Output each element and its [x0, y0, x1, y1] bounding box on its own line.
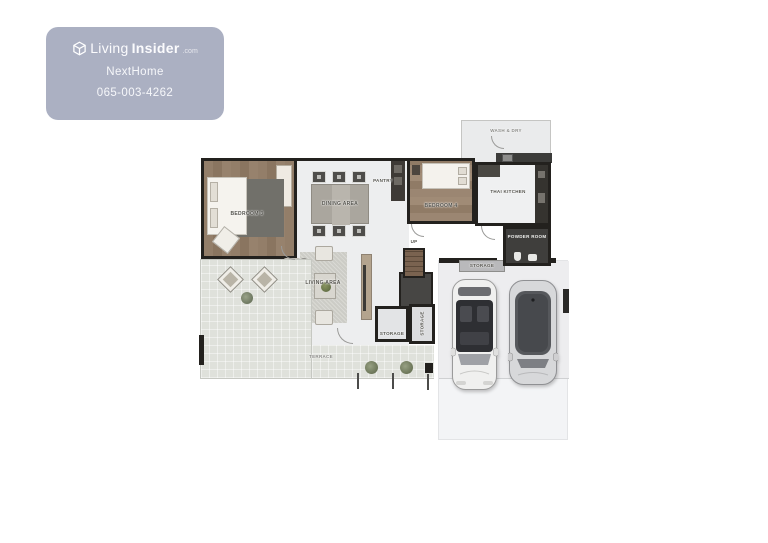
powder-room: POWDER ROOM [503, 226, 551, 266]
watermark-badge: LivingInsider.com NextHome 065-003-4262 [46, 27, 224, 120]
fence-post [427, 374, 429, 390]
fence-post [357, 373, 359, 389]
armchair [315, 310, 333, 325]
sink [538, 171, 545, 178]
brand-word-living: Living [90, 40, 128, 56]
thai-kitchen: THAI KITCHEN [475, 162, 551, 226]
storage-room-side: STORAGE [409, 304, 435, 344]
fence-post [392, 373, 394, 389]
watermark-agent-name: NextHome [106, 66, 164, 78]
kitchen-door-arc [481, 226, 495, 240]
storage-hall-label: STORAGE [378, 331, 406, 336]
bedroom4-label: BEDROOM 4 [410, 203, 472, 209]
brand-tld: .com [183, 48, 198, 55]
bedroom-3: BEDROOM 3 [201, 158, 297, 259]
pantry-label: PANTRY [363, 178, 403, 183]
pantry-shelf [394, 165, 402, 173]
pillow [458, 167, 467, 175]
wash-dry-label: WASH & DRY [462, 128, 550, 133]
nightstand [412, 165, 420, 175]
dining-area-label: DINING AREA [308, 201, 372, 207]
car-silver-top-view [508, 279, 558, 386]
powder-room-label: POWDER ROOM [506, 234, 548, 240]
garage-right-wall-stub [563, 289, 569, 313]
armchair [315, 246, 333, 261]
screenshot-canvas: LivingInsider.com NextHome 065-003-4262 … [0, 0, 768, 543]
floor-plan: WASH & DRY STORAGE [195, 118, 570, 443]
watermark-logo-row: LivingInsider.com [72, 40, 198, 56]
stove [538, 193, 545, 203]
shrub [400, 361, 413, 374]
bedroom3-label: BEDROOM 3 [212, 211, 282, 217]
stairs-up-label: UP [403, 239, 425, 244]
bedroom4-door-arc [411, 224, 424, 237]
kitchen-counter-right [535, 165, 548, 223]
dining-chair [332, 171, 346, 183]
car-white-top-view [451, 278, 498, 391]
pillow [210, 182, 218, 202]
washing-machine [502, 154, 513, 162]
coffee-table [314, 273, 336, 299]
bedroom-4: BEDROOM 4 [407, 158, 475, 224]
shrub [365, 361, 378, 374]
dining-chair [352, 225, 366, 237]
corner-post [425, 363, 433, 373]
bedroom3-bed [207, 177, 247, 235]
garage-storage-label: STORAGE [460, 263, 504, 268]
kitchen-counter-top [478, 165, 500, 177]
stairs [403, 248, 425, 278]
garage-driveway: STORAGE [438, 260, 568, 440]
tv [363, 265, 366, 311]
brand-word-insider: Insider [132, 40, 180, 56]
terrace-wall-stub [199, 335, 204, 365]
watermark-phone: 065-003-4262 [97, 87, 173, 99]
garage-storage-shelf: STORAGE [459, 260, 505, 272]
pillow [458, 177, 467, 185]
dining-chair [332, 225, 346, 237]
terrace-label: TERRACE [291, 354, 351, 359]
living-area-label: LIVING AREA [291, 280, 355, 286]
storage-side-label: STORAGE [420, 300, 425, 348]
dining-chair [312, 171, 326, 183]
tv-console [361, 254, 372, 320]
dining-chair [312, 225, 326, 237]
storage-room-hall: STORAGE [375, 306, 409, 342]
terrace-plant [241, 292, 253, 304]
bedroom4-bed [422, 163, 470, 189]
toilet [514, 252, 521, 261]
thai-kitchen-label: THAI KITCHEN [478, 189, 538, 194]
sink-basin [528, 254, 537, 261]
cube-logo-icon [72, 41, 87, 56]
